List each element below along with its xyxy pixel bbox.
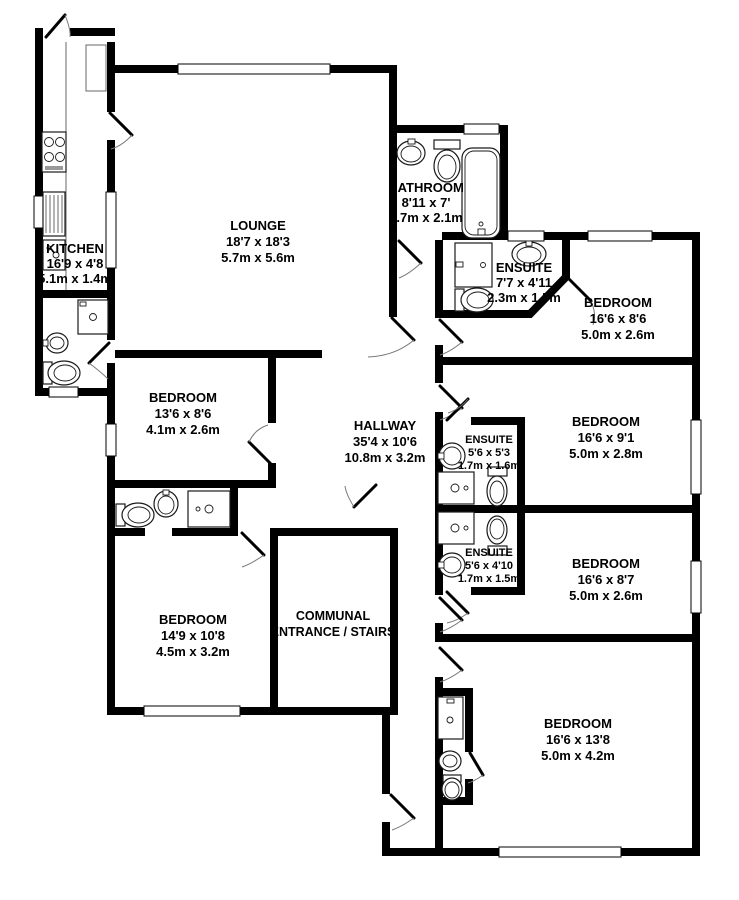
kitchen-name: KITCHEN <box>46 241 104 256</box>
bedroom-right-low-name: BEDROOM <box>572 556 640 571</box>
door-leaf <box>470 753 483 775</box>
door-arc <box>440 670 462 682</box>
door-arc <box>399 263 421 278</box>
door-leaf <box>89 343 109 363</box>
window-marker <box>508 231 544 241</box>
bedroom-right-low-metric: 5.0m x 2.6m <box>569 588 643 603</box>
floor-plan: KITCHEN 16'9 x 4'8 5.1m x 1.4m LOUNGE 18… <box>0 0 739 900</box>
ensuite-top-imperial: 7'7 x 4'11 <box>496 275 552 290</box>
window-marker <box>106 424 116 456</box>
ensuite-mid-lower-label: ENSUITE 5'6 x 4'10 1.7m x 1.5m <box>458 547 521 585</box>
kitchen-imperial: 16'9 x 4'8 <box>47 256 104 271</box>
kitchen-unit-icon <box>43 192 65 236</box>
kitchen-label: KITCHEN 16'9 x 4'8 5.1m x 1.4m <box>38 241 112 286</box>
bedroom-bot-left-metric: 4.5m x 3.2m <box>156 644 230 659</box>
toilet-icon <box>442 775 462 800</box>
window-marker <box>49 387 78 397</box>
ensuite-mid-lower-name: ENSUITE <box>465 547 513 559</box>
lounge-label: LOUNGE 18'7 x 18'3 5.7m x 5.6m <box>221 218 295 265</box>
ensuite-mid-upper-metric: 1.7m x 1.6m <box>458 460 521 472</box>
door-leaf <box>249 442 271 464</box>
door-arc <box>440 342 462 355</box>
floor-plan-canvas: KITCHEN 16'9 x 4'8 5.1m x 1.4m LOUNGE 18… <box>0 0 739 900</box>
sink-icon <box>43 333 68 353</box>
toilet-icon <box>487 467 507 506</box>
communal-label: COMMUNAL ENTRANCE / STAIRS <box>271 609 396 639</box>
sink-icon <box>154 490 178 517</box>
bathroom-imperial: 8'11 x 7' <box>402 195 451 210</box>
hallway-imperial: 35'4 x 10'6 <box>353 434 417 449</box>
window-marker <box>106 192 116 268</box>
door-leaf <box>391 795 414 818</box>
bedroom-right-low-imperial: 16'6 x 8'7 <box>578 572 635 587</box>
ensuite-mid-upper-imperial: 5'6 x 5'3 <box>468 447 510 459</box>
bedroom-bot-left-label: BEDROOM 14'9 x 10'8 4.5m x 3.2m <box>156 612 230 659</box>
hallway-name: HALLWAY <box>354 418 417 433</box>
hallway-label: HALLWAY 35'4 x 10'6 10.8m x 3.2m <box>345 418 426 465</box>
bedroom-top-right-metric: 5.0m x 2.6m <box>581 327 655 342</box>
bathroom-name: BATHROOM <box>388 180 464 195</box>
window-marker <box>499 847 621 857</box>
window-marker <box>464 124 499 134</box>
window-marker <box>691 420 701 494</box>
shower-icon <box>78 300 108 334</box>
bedroom-top-right-imperial: 16'6 x 8'6 <box>590 311 647 326</box>
bedroom-right-mid-imperial: 16'6 x 9'1 <box>578 430 635 445</box>
door-arc <box>368 340 414 357</box>
door-leaf <box>440 320 462 342</box>
door-arc <box>242 555 264 567</box>
toilet-icon <box>434 140 460 182</box>
shower-icon <box>188 491 230 527</box>
communal-line2: ENTRANCE / STAIRS <box>271 625 396 639</box>
ensuite-mid-upper-label: ENSUITE 5'6 x 5'3 1.7m x 1.6m <box>458 434 521 472</box>
bedroom-bot-left-imperial: 14'9 x 10'8 <box>161 628 225 643</box>
toilet-icon <box>43 361 80 385</box>
shower-icon <box>438 472 474 504</box>
fixtures <box>42 42 546 800</box>
bedroom-bottom-metric: 5.0m x 4.2m <box>541 748 615 763</box>
bedroom-left-imperial: 13'6 x 8'6 <box>155 406 212 421</box>
door-leaf <box>440 386 462 408</box>
door-leaf <box>392 318 414 340</box>
door-arc <box>345 486 354 507</box>
bath-icon <box>462 148 500 238</box>
bedroom-right-mid-label: BEDROOM 16'6 x 9'1 5.0m x 2.8m <box>569 414 643 461</box>
shower-icon <box>438 697 463 739</box>
lounge-metric: 5.7m x 5.6m <box>221 250 295 265</box>
window-marker <box>178 64 330 74</box>
bedroom-bottom-label: BEDROOM 16'6 x 13'8 5.0m x 4.2m <box>541 716 615 763</box>
bathroom-label: BATHROOM 8'11 x 7' 2.7m x 2.1m <box>388 180 464 225</box>
ensuite-mid-upper-name: ENSUITE <box>465 434 513 446</box>
door-arc <box>65 15 70 37</box>
bedroom-bot-left-name: BEDROOM <box>159 612 227 627</box>
door-arc <box>392 818 414 830</box>
lounge-imperial: 18'7 x 18'3 <box>226 234 290 249</box>
bedroom-left-name: BEDROOM <box>149 390 217 405</box>
bedroom-right-mid-metric: 5.0m x 2.8m <box>569 446 643 461</box>
sink-icon <box>397 139 425 165</box>
bedroom-left-label: BEDROOM 13'6 x 8'6 4.1m x 2.6m <box>146 390 220 437</box>
ensuite-mid-lower-metric: 1.7m x 1.5m <box>458 573 521 585</box>
door-leaf <box>110 113 132 135</box>
ensuite-mid-lower-imperial: 5'6 x 4'10 <box>465 560 513 572</box>
bedroom-bottom-name: BEDROOM <box>544 716 612 731</box>
toilet-icon <box>116 503 154 527</box>
door-leaf <box>354 485 376 507</box>
kitchen-metric: 5.1m x 1.4m <box>38 271 112 286</box>
door-leaf <box>46 15 65 37</box>
bedroom-right-low-label: BEDROOM 16'6 x 8'7 5.0m x 2.6m <box>569 556 643 603</box>
door-leaf <box>440 648 462 670</box>
ensuite-top-name: ENSUITE <box>496 260 553 275</box>
door-leaf <box>242 533 264 555</box>
bedroom-right-mid-name: BEDROOM <box>572 414 640 429</box>
shower-icon <box>438 512 474 544</box>
bedroom-bottom-imperial: 16'6 x 13'8 <box>546 732 610 747</box>
window-marker <box>691 561 701 613</box>
hallway-metric: 10.8m x 3.2m <box>345 450 426 465</box>
door-leaf <box>399 241 421 263</box>
shower-icon <box>455 243 492 287</box>
bedroom-top-right-label: BEDROOM 16'6 x 8'6 5.0m x 2.6m <box>581 295 655 342</box>
bedroom-left-metric: 4.1m x 2.6m <box>146 422 220 437</box>
lounge-name: LOUNGE <box>230 218 286 233</box>
window-marker <box>588 231 652 241</box>
door-leaf <box>440 598 462 620</box>
bedroom-top-right-name: BEDROOM <box>584 295 652 310</box>
sink-icon <box>439 751 461 771</box>
ensuite-top-label: ENSUITE 7'7 x 4'11 2.3m x 1.5m <box>487 260 561 305</box>
bathroom-metric: 2.7m x 2.1m <box>389 210 463 225</box>
ensuite-top-metric: 2.3m x 1.5m <box>487 290 561 305</box>
door-arc <box>249 425 268 442</box>
hob-icon <box>42 132 66 172</box>
window-marker <box>144 706 240 716</box>
door-arc <box>89 363 108 379</box>
communal-line1: COMMUNAL <box>296 609 371 623</box>
